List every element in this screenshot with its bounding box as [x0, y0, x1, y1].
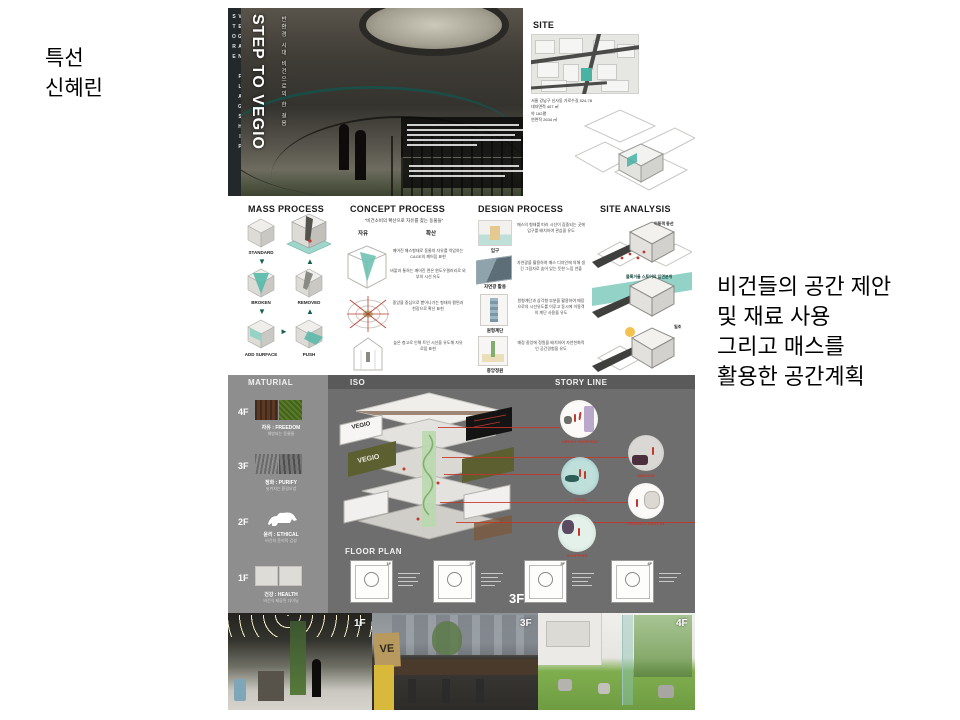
plant-wall: [290, 621, 306, 695]
annotation-line: 활용한 공간계획: [717, 362, 891, 392]
floor-theme: 정화 : PURIFY: [249, 479, 313, 486]
floor-theme: 건강 : HEALTH: [249, 591, 313, 598]
cafe-table: [388, 659, 538, 675]
mass-step-label: PUSH: [288, 352, 330, 357]
floor-plan-1f: 1F: [350, 560, 393, 603]
story-caption: WINDOW: [616, 473, 676, 478]
concept-quote: "비건소비의 확산으로 자유를 찾는 동물들": [340, 218, 468, 224]
design-sketch-stair: [480, 294, 508, 326]
concept-text-3: 높은 층고로 인해 트인 시선을 유도해 자유로움 표현: [392, 340, 464, 352]
design-item-text: 자연광을 활용하여 매스 디자인에 의해 생긴 그림자로 숨어 있는 듯한 느낌…: [516, 260, 586, 272]
render-strip: 1F VE 3F 4F: [228, 613, 695, 710]
design-sketch-entrance: [478, 220, 512, 246]
city-view: [392, 615, 538, 655]
mass-cube-removed: [294, 268, 324, 298]
mass-step-label: REMOVED: [288, 300, 330, 305]
concept-process-header: CONCEPT PROCESS: [350, 204, 445, 214]
floor-subtext: 비건식 제공된 다이닝: [249, 598, 313, 604]
arrow-up-icon: ▲: [306, 308, 314, 316]
arrow-down-icon: ▼: [258, 258, 266, 266]
wall-cabinet: [546, 621, 590, 647]
person-silhouette: [312, 659, 321, 697]
design-item-label: 입구: [472, 248, 518, 254]
site-axonometric: [575, 96, 695, 196]
design-item-label: 원형계단: [470, 328, 520, 334]
floorplan-big-label: 3F: [509, 591, 524, 606]
award-text: 특선 신혜린: [45, 44, 103, 105]
concept-text-2: 중앙을 중심으로 뻗어나가는 형태의 평면과 천장으로 확산 표현: [392, 300, 464, 312]
plan-floor-tag: 2F: [469, 561, 474, 566]
floorplan-header: FLOOR PLAN: [345, 547, 402, 556]
mass-step-label: ADD SURFACE: [238, 352, 284, 357]
annotation-line: 그리고 매스를: [717, 332, 891, 362]
mass-cube-push: [294, 319, 324, 349]
concept-text-1: 깨어진 매스형태로 동물의 자유를 억압하는 CAGE의 깨어짐 표현: [390, 248, 466, 260]
person-silhouette: [339, 124, 349, 170]
analysis-label-2: 블록거울 스토어의 입면분위: [626, 274, 672, 280]
mass-step-label: STANDARD: [240, 250, 282, 255]
story-vignette: [558, 514, 596, 552]
concept-cage-sketch: [346, 244, 388, 290]
person-silhouette: [355, 130, 366, 180]
poster-subtitle: 반환경 시대 비건으로의 한 걸음: [279, 16, 287, 128]
render-3f: VE 3F: [372, 613, 538, 710]
floor-plan-2f: 2F: [433, 560, 476, 603]
poster-spine: VEGAN FLAGSHIP STORE: [228, 8, 241, 196]
leader-line: [440, 502, 628, 503]
process-row: MASS PROCESS STANDARD ▼ BROKEN ▼: [228, 196, 695, 375]
design-item-text: 매스의 형태를 따라 시선이 집중되는 곳에 입구를 배치하여 관심을 유도: [516, 222, 586, 234]
concept-keyword: 확산: [426, 229, 436, 237]
design-sketch-garden: [478, 336, 508, 366]
render-1f: 1F: [228, 613, 372, 710]
floor-level: 4F: [238, 407, 249, 417]
concept-keyword: 자유: [358, 229, 368, 237]
section-header-band: [328, 375, 695, 389]
floor-subtext: 비건의 윤리적 감성: [249, 538, 313, 544]
plan-legend: [481, 570, 503, 589]
annotation-line: 비건들의 공간 제안: [717, 272, 891, 302]
render-floor-label: 1F: [354, 618, 366, 629]
material-swatch-grass: [279, 400, 302, 420]
polar-bear-icon: [266, 511, 298, 527]
analysis-circulation: [592, 218, 692, 270]
material-header: MATURIAL: [248, 378, 293, 387]
iso-exploded-axon: VEGIO VEGIO: [334, 391, 524, 553]
render-floor-label: 3F: [520, 618, 532, 629]
plan-floor-tag: 3F: [560, 561, 565, 566]
presentation-slide: 특선 신혜린 비건들의 공간 제안 및 재료 사용 그리고 매스를 활용한 공간…: [0, 0, 960, 720]
plan-legend: [659, 570, 681, 585]
mass-cube-addsurface: [246, 319, 276, 349]
slide-annotation: 비건들의 공간 제안 및 재료 사용 그리고 매스를 활용한 공간계획: [717, 272, 891, 393]
intro-paragraph-2: [403, 158, 523, 188]
plan-legend: [398, 570, 420, 589]
vegio-sign: VE: [373, 632, 401, 667]
mass-step-label: BROKEN: [240, 300, 282, 305]
design-item-text: 원형계단과 삼각형 부분을 활용하여 매장으로의 시선유도를 이루고 동시에 이…: [516, 298, 586, 316]
floor-subtext: 해방되는 동물들: [249, 431, 313, 437]
material-swatch-concrete: [255, 454, 278, 474]
floor-plan-3f: 3F: [524, 560, 567, 603]
site-panel: SITE 서울 강남구 신사동 가로수길 524-78 대지면적 407 ㎡: [523, 8, 695, 196]
floor-level: 2F: [238, 517, 249, 527]
story-caption: FOOD: [550, 497, 610, 502]
annotation-line: 및 재료 사용: [717, 302, 891, 332]
competition-board: VEGAN FLAGSHIP STORE STEP TO VEGIO 반환경 시…: [228, 8, 695, 712]
story-vignette: [561, 457, 599, 495]
storyline-header: STORY LINE: [555, 378, 607, 387]
leader-line: [444, 474, 560, 475]
site-location-highlight: [581, 68, 592, 81]
render-floor-label: 4F: [676, 618, 688, 629]
tree: [432, 621, 462, 655]
floor-level: 3F: [238, 461, 249, 471]
material-swatch-tile: [255, 566, 278, 586]
glass-panel: [622, 615, 633, 705]
render-4f: 4F: [538, 613, 695, 710]
arrow-right-icon: ►: [280, 328, 288, 336]
award-title: 특선: [45, 47, 84, 70]
material-swatch-rain: [279, 454, 302, 474]
arrow-down-icon: ▼: [258, 308, 266, 316]
arrow-up-icon: ▲: [306, 258, 314, 266]
mass-cube-standard: [246, 218, 276, 248]
site-analysis-header: SITE ANALYSIS: [600, 204, 671, 214]
concept-radial-sketch: [346, 294, 390, 334]
concept-house-sketch: [352, 336, 384, 372]
leader-line: [438, 427, 560, 428]
plan-legend: [572, 570, 594, 589]
story-vignette: [628, 483, 664, 519]
site-map: [531, 34, 639, 94]
material-swatch-tile: [279, 566, 302, 586]
floor-plan-4f: 4F: [611, 560, 654, 603]
analysis-label-1: 이동객 동선: [654, 221, 674, 227]
analysis-label-3: 일조: [674, 324, 681, 330]
lower-section: MATURIAL 4F 자유 : FREEDOM 해방되는 동물들 3F 정화 …: [228, 375, 695, 613]
floor-level: 1F: [238, 573, 249, 583]
design-item-text: 매장 중앙에 정원을 배치하여 자연친화적인 공간경험을 유도: [516, 340, 586, 352]
material-column: MATURIAL 4F 자유 : FREEDOM 해방되는 동물들 3F 정화 …: [228, 375, 328, 613]
poster-title: STEP TO VEGIO: [248, 14, 266, 150]
iso-header: ISO: [350, 378, 365, 387]
story-vignette: [560, 400, 598, 438]
yellow-block: [374, 665, 394, 710]
plan-floor-tag: 1F: [386, 561, 391, 566]
plan-floor-tag: 4F: [647, 561, 652, 566]
skylight-oculus: [359, 8, 509, 56]
floor-subtext: 씻겨지는 환경오염: [249, 486, 313, 492]
story-vignette: [628, 435, 664, 471]
intro-paragraph-1: [401, 117, 523, 157]
leader-line: [442, 457, 628, 458]
site-header: SITE: [533, 20, 554, 30]
story-caption: PRODUCT DISPLAY: [616, 521, 676, 526]
floor-theme: 윤리 : ETHICAL: [249, 531, 313, 538]
display-object: [258, 671, 284, 701]
stool: [598, 683, 610, 694]
design-process-header: DESIGN PROCESS: [478, 204, 563, 214]
stool: [658, 685, 674, 698]
mass-final: [286, 212, 332, 254]
story-caption: GREEN SHOPPING: [550, 439, 610, 444]
design-item-label: 중앙정원: [470, 368, 520, 374]
hero-photo: STEP TO VEGIO 반환경 시대 비건으로의 한 걸음: [241, 8, 523, 196]
design-sketch-daylight: [476, 255, 512, 284]
floor-theme: 자유 : FREEDOM: [249, 424, 313, 431]
display-object: [234, 679, 246, 701]
material-swatch-wood: [255, 400, 278, 420]
stool: [558, 679, 572, 691]
award-author: 신혜린: [45, 77, 103, 100]
story-caption: SHOPPING: [547, 553, 607, 558]
concept-text-1b: 바깥과 통하는 깨어진 면은 윈도우갤러리로 외부의 시선 유도: [390, 268, 466, 280]
design-item-label: 자연광 활용: [468, 284, 522, 290]
mass-cube-broken: [246, 268, 276, 298]
